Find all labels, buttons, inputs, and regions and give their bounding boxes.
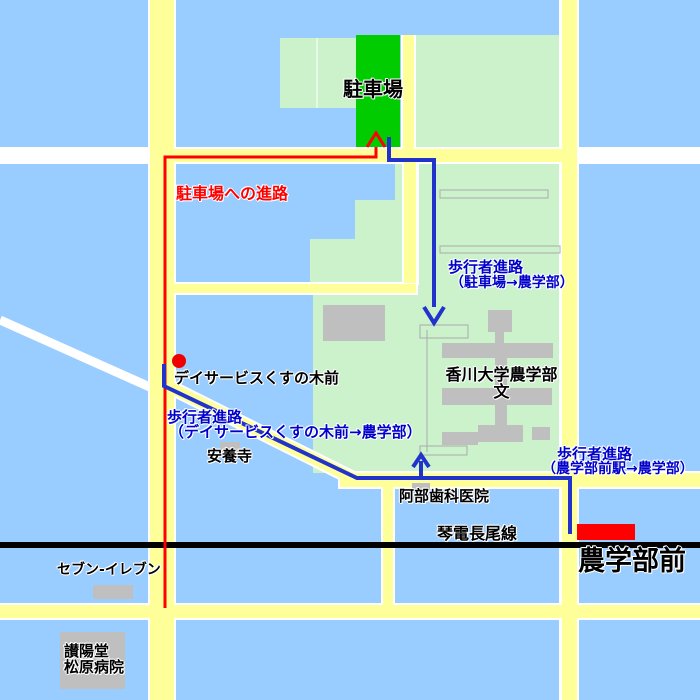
campus-area-west-step: [355, 200, 403, 240]
campus-road-upper: [403, 35, 414, 152]
route-map: 駐車場 駐車場への進路 歩行者進路 （駐車場→農学部） 香川大学農学部 文 デイ…: [0, 0, 700, 700]
seven-eleven-building: [93, 585, 133, 599]
campus-area-north: [412, 35, 563, 152]
abe-dental-label: 阿部歯科医院: [399, 489, 489, 505]
walk-route-parking-label-line2: （駐車場→農学部）: [450, 276, 574, 291]
campus-areas: [280, 35, 563, 473]
thin-road: [163, 284, 416, 293]
day-service-stop-dot: [172, 354, 186, 368]
parking-label: 駐車場: [343, 79, 403, 100]
campus-area-west-upper: [310, 239, 403, 286]
walk-route-station-label-line2: （農学部前駅→農学部）: [542, 462, 694, 477]
diagonal-white-road: [0, 320, 152, 388]
station-marker: [577, 524, 635, 540]
walk-route-parking-label-line1: 歩行者進路: [448, 260, 523, 276]
campus-road-lower: [404, 162, 416, 283]
railway-label: 琴電長尾線: [437, 526, 517, 543]
hospital-label-line2: 松原病院: [64, 660, 124, 676]
map-canvas: [0, 0, 700, 700]
anyoji-label: 安養寺: [207, 449, 252, 465]
right-road: [562, 0, 577, 700]
day-service-label: デイサービスくすの木前: [174, 371, 339, 387]
station-label: 農学部前: [578, 548, 686, 576]
campus-west-building: [323, 305, 385, 341]
seven-eleven-label: セブン-イレブン: [57, 563, 161, 578]
walk-route-dayservice-label-line2: （デイサービスくすの木前→農学部）: [169, 425, 422, 441]
route-to-parking-label: 駐車場への進路: [176, 186, 288, 203]
bottom-road: [0, 605, 700, 618]
university-label-line2: 文: [444, 384, 559, 401]
left-road: [150, 0, 174, 700]
